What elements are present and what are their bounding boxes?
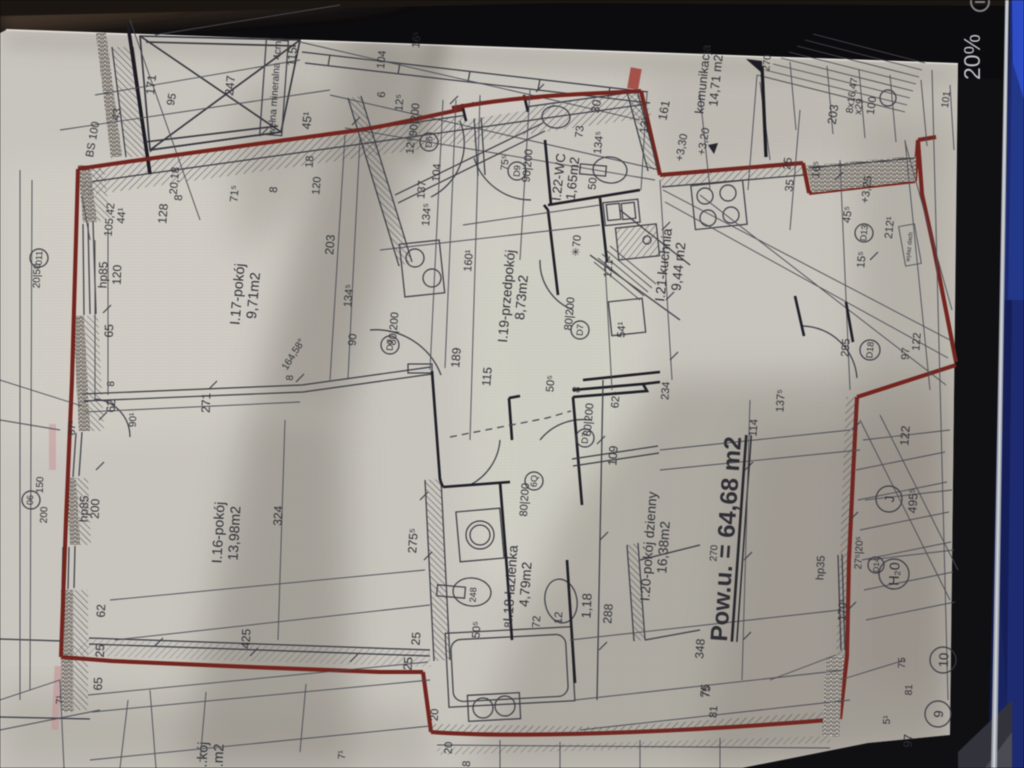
svg-text:1,18: 1,18 xyxy=(578,593,594,619)
svg-text:160¹: 160¹ xyxy=(462,249,476,272)
svg-text:16⁵: 16⁵ xyxy=(810,160,824,178)
svg-text:200: 200 xyxy=(88,498,103,519)
svg-text:348: 348 xyxy=(692,638,707,659)
svg-text:288: 288 xyxy=(600,603,615,624)
svg-text:D13: D13 xyxy=(858,224,870,241)
svg-text:7¹: 7¹ xyxy=(337,749,348,759)
svg-text:212¹: 212¹ xyxy=(883,216,897,239)
svg-text:D14: D14 xyxy=(872,557,882,573)
svg-text:13⁵: 13⁵ xyxy=(638,116,652,134)
svg-text:D7: D7 xyxy=(575,324,586,336)
svg-text:114: 114 xyxy=(747,419,760,437)
svg-text:6: 6 xyxy=(376,91,389,98)
svg-text:62⁵: 62⁵ xyxy=(609,391,622,409)
svg-text:189: 189 xyxy=(448,347,464,368)
svg-text:247: 247 xyxy=(222,75,238,97)
svg-text:200: 200 xyxy=(39,506,51,523)
svg-text:06: 06 xyxy=(25,495,35,505)
svg-text:25: 25 xyxy=(93,644,107,658)
svg-text:011: 011 xyxy=(34,251,44,266)
svg-text:25: 25 xyxy=(409,631,424,646)
svg-text:12⁵: 12⁵ xyxy=(404,137,417,155)
svg-text:9: 9 xyxy=(931,710,946,718)
svg-text:20%: 20% xyxy=(959,34,985,80)
svg-text:137⁵: 137⁵ xyxy=(774,389,788,413)
svg-text:495⁵: 495⁵ xyxy=(905,488,921,514)
svg-text:72: 72 xyxy=(531,615,544,628)
svg-text:7¹: 7¹ xyxy=(55,694,66,704)
svg-text:15⁵: 15⁵ xyxy=(855,251,869,269)
svg-text:45⁵: 45⁵ xyxy=(841,205,855,223)
svg-text:10: 10 xyxy=(936,652,952,667)
svg-text:45¹: 45¹ xyxy=(299,111,315,130)
svg-text:120: 120 xyxy=(310,176,324,195)
svg-text:J: J xyxy=(882,495,897,502)
svg-text:54¹: 54¹ xyxy=(615,321,628,338)
svg-text:35: 35 xyxy=(783,179,797,193)
svg-text:137: 137 xyxy=(415,180,429,199)
svg-text:20,18: 20,18 xyxy=(168,167,182,195)
svg-text:D6: D6 xyxy=(424,136,435,148)
svg-text:73: 73 xyxy=(573,125,586,138)
svg-text:8: 8 xyxy=(503,621,515,628)
svg-text:115: 115 xyxy=(479,366,495,387)
svg-text:75: 75 xyxy=(897,657,909,669)
svg-text:234: 234 xyxy=(659,381,672,400)
svg-text:18: 18 xyxy=(304,155,317,168)
svg-text:425: 425 xyxy=(238,628,253,649)
svg-text:65: 65 xyxy=(102,324,116,338)
svg-text:275⁵: 275⁵ xyxy=(405,528,421,554)
svg-text:81: 81 xyxy=(904,684,916,696)
svg-text:90¹: 90¹ xyxy=(128,412,140,427)
svg-text:95: 95 xyxy=(165,92,179,106)
svg-text:D18: D18 xyxy=(864,341,875,358)
svg-text:D7: D7 xyxy=(385,339,396,351)
svg-text:100: 100 xyxy=(865,96,879,116)
svg-text:271: 271 xyxy=(199,392,214,413)
svg-text:104: 104 xyxy=(430,163,444,182)
svg-text:75⁵: 75⁵ xyxy=(499,155,511,171)
svg-text:12: 12 xyxy=(553,611,566,624)
svg-text:65: 65 xyxy=(91,677,105,691)
svg-text:87¹: 87¹ xyxy=(67,420,79,435)
svg-text:104: 104 xyxy=(375,50,389,70)
svg-text:115: 115 xyxy=(284,46,300,67)
svg-text:270: 270 xyxy=(761,53,774,71)
svg-text:D9: D9 xyxy=(512,165,523,177)
svg-text:20: 20 xyxy=(443,741,456,754)
svg-text:12⁵: 12⁵ xyxy=(393,94,406,112)
svg-text:203: 203 xyxy=(322,234,338,255)
svg-text:20: 20 xyxy=(429,708,442,721)
svg-text:81: 81 xyxy=(708,705,721,718)
svg-text:D7: D7 xyxy=(580,432,591,444)
svg-text:4,79m2: 4,79m2 xyxy=(516,561,534,607)
svg-text:122: 122 xyxy=(897,425,912,446)
svg-text:75: 75 xyxy=(701,685,714,698)
svg-text:43: 43 xyxy=(110,107,124,121)
svg-text:13,98m2: 13,98m2 xyxy=(225,505,244,560)
svg-text:203: 203 xyxy=(825,103,842,125)
svg-text:170¹: 170¹ xyxy=(836,598,849,621)
svg-text:90: 90 xyxy=(347,333,360,346)
svg-text:25: 25 xyxy=(401,656,416,671)
svg-text:97: 97 xyxy=(901,733,916,747)
svg-text:8: 8 xyxy=(268,186,280,193)
svg-text:248: 248 xyxy=(468,587,479,603)
svg-text:62: 62 xyxy=(104,399,118,413)
svg-text:hp85: hp85 xyxy=(96,261,111,288)
svg-text:5¹: 5¹ xyxy=(882,714,893,724)
svg-text:50⁵: 50⁵ xyxy=(544,375,557,393)
svg-text:134⁵: 134⁵ xyxy=(592,131,606,155)
svg-text:62: 62 xyxy=(94,604,108,618)
svg-text:80|200: 80|200 xyxy=(518,483,532,517)
svg-text:27⁵|20⁵: 27⁵|20⁵ xyxy=(853,536,866,570)
svg-text:25: 25 xyxy=(781,157,795,171)
svg-text:121¹: 121¹ xyxy=(602,255,616,278)
svg-text:171: 171 xyxy=(143,74,159,96)
svg-text:324: 324 xyxy=(270,505,285,526)
svg-text:122: 122 xyxy=(910,332,924,351)
svg-text:...kój: ...kój xyxy=(193,741,211,768)
svg-text:hp35: hp35 xyxy=(814,555,827,580)
svg-text:8: 8 xyxy=(461,760,473,767)
svg-text:270: 270 xyxy=(708,544,720,562)
svg-text:8: 8 xyxy=(571,386,583,393)
svg-text:16⁵: 16⁵ xyxy=(410,31,424,49)
svg-text:50: 50 xyxy=(586,177,599,190)
svg-text:150: 150 xyxy=(35,476,47,493)
svg-text:✳70: ✳70 xyxy=(570,235,584,257)
svg-text:44¹: 44¹ xyxy=(115,207,128,224)
svg-text:H₂0: H₂0 xyxy=(885,562,902,586)
svg-text:134⁵: 134⁵ xyxy=(342,284,356,308)
svg-text:120: 120 xyxy=(110,264,125,285)
svg-text:6Q: 6Q xyxy=(529,475,540,488)
svg-text:134⁵: 134⁵ xyxy=(420,203,434,227)
svg-text:71⁵: 71⁵ xyxy=(228,185,241,203)
svg-text:50⁵: 50⁵ xyxy=(471,621,484,638)
svg-text:109: 109 xyxy=(605,445,620,466)
svg-text:128: 128 xyxy=(155,203,171,224)
